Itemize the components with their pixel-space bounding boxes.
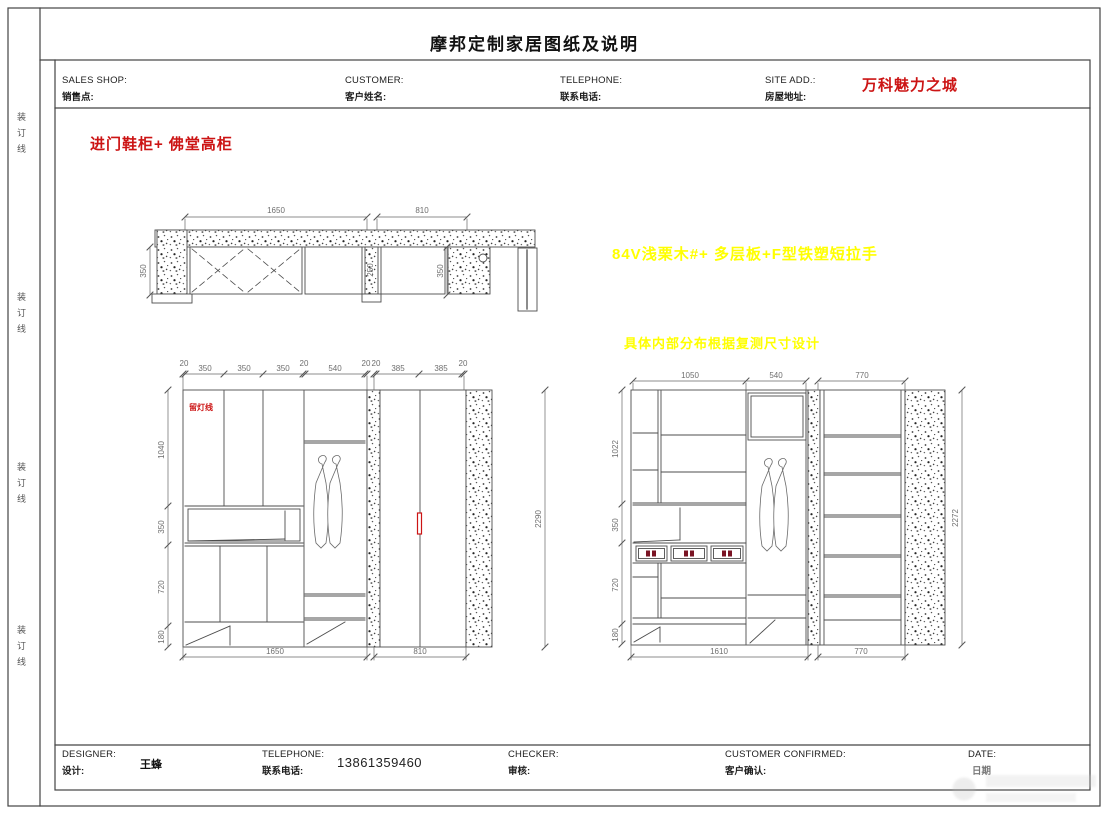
drawing-sheet: 1650 810 350 250 350 xyxy=(0,0,1108,813)
dim-label: 2290 xyxy=(534,510,543,528)
designer-label-cn: 设计: xyxy=(62,763,84,777)
dim-label: 1022 xyxy=(611,440,620,458)
date-label-en: DATE: xyxy=(968,749,996,760)
dim-label: 2272 xyxy=(951,509,960,527)
footer-telephone-label-en: TELEPHONE: xyxy=(262,749,324,760)
dim-label: 1650 xyxy=(266,647,284,656)
telephone-label-en: TELEPHONE: xyxy=(560,75,622,86)
dim-label: 770 xyxy=(855,371,869,380)
dim-label: 350 xyxy=(436,264,445,278)
lamp-wire-note: 留灯线 xyxy=(189,402,213,413)
customer-confirmed-label-en: CUSTOMER CONFIRMED: xyxy=(725,749,846,760)
material-note: 84V浅栗木#+ 多层板+F型铁塑短拉手 xyxy=(612,243,878,264)
designer-value: 王蜂 xyxy=(140,756,162,772)
dim-label: 350 xyxy=(157,520,166,534)
dim-label: 20 xyxy=(180,359,189,368)
door-handle-mark xyxy=(418,513,422,534)
plan-view xyxy=(152,230,537,311)
dim-label: 540 xyxy=(328,364,342,373)
checker-label-cn: 审核: xyxy=(508,763,530,777)
dim-label: 810 xyxy=(415,206,429,215)
customer-confirmed-label-cn: 客户确认: xyxy=(725,763,766,777)
site-add-label-cn: 房屋地址: xyxy=(765,89,806,103)
dim-label: 20 xyxy=(372,359,381,368)
telephone-value: 13861359460 xyxy=(337,755,422,770)
dim-label: 20 xyxy=(362,359,371,368)
dim-label: 350 xyxy=(611,518,620,532)
sheet-title: 摩邦定制家居图纸及说明 xyxy=(430,30,639,55)
dim-label: 1040 xyxy=(157,441,166,459)
dim-label: 180 xyxy=(611,628,620,642)
customer-label-en: CUSTOMER: xyxy=(345,75,404,86)
binding-line-label: 装订线 xyxy=(15,625,28,673)
elevation-right xyxy=(631,390,945,645)
dim-label: 180 xyxy=(157,630,166,644)
binding-line-label: 装订线 xyxy=(15,292,28,340)
watermark xyxy=(946,765,1106,811)
checker-label-en: CHECKER: xyxy=(508,749,559,760)
telephone-label-cn: 联系电话: xyxy=(560,89,601,103)
dim-label: 350 xyxy=(276,364,290,373)
dim-label: 720 xyxy=(611,578,620,592)
dim-label: 250 xyxy=(366,263,375,277)
dim-label: 1050 xyxy=(681,371,699,380)
cabinet-title-note: 进门鞋柜+ 佛堂高柜 xyxy=(90,133,233,154)
dim-label: 810 xyxy=(413,647,427,656)
sales-shop-label-cn: 销售点: xyxy=(62,89,94,103)
dim-label: 770 xyxy=(854,647,868,656)
elevation-left xyxy=(183,390,492,647)
dim-label: 20 xyxy=(459,359,468,368)
dim-label: 385 xyxy=(391,364,405,373)
binding-line-label: 装订线 xyxy=(15,462,28,510)
dim-label: 1610 xyxy=(710,647,728,656)
dim-label: 720 xyxy=(157,580,166,594)
dim-label: 350 xyxy=(237,364,251,373)
dim-label: 20 xyxy=(300,359,309,368)
customer-label-cn: 客户姓名: xyxy=(345,89,386,103)
designer-label-en: DESIGNER: xyxy=(62,749,116,760)
binding-line-label: 装订线 xyxy=(15,112,28,160)
dim-label: 540 xyxy=(769,371,783,380)
site-add-label-en: SITE ADD.: xyxy=(765,75,816,86)
site-address-value: 万科魅力之城 xyxy=(862,74,958,95)
footer-telephone-label-cn: 联系电话: xyxy=(262,763,303,777)
dim-label: 1650 xyxy=(267,206,285,215)
dim-label: 350 xyxy=(139,264,148,278)
sales-shop-label-en: SALES SHOP: xyxy=(62,75,127,86)
layout-note: 具体内部分布根据复测尺寸设计 xyxy=(624,333,820,352)
dim-label: 350 xyxy=(198,364,212,373)
cad-linework: 1650 810 350 250 350 xyxy=(0,0,1108,813)
dim-label: 385 xyxy=(434,364,448,373)
